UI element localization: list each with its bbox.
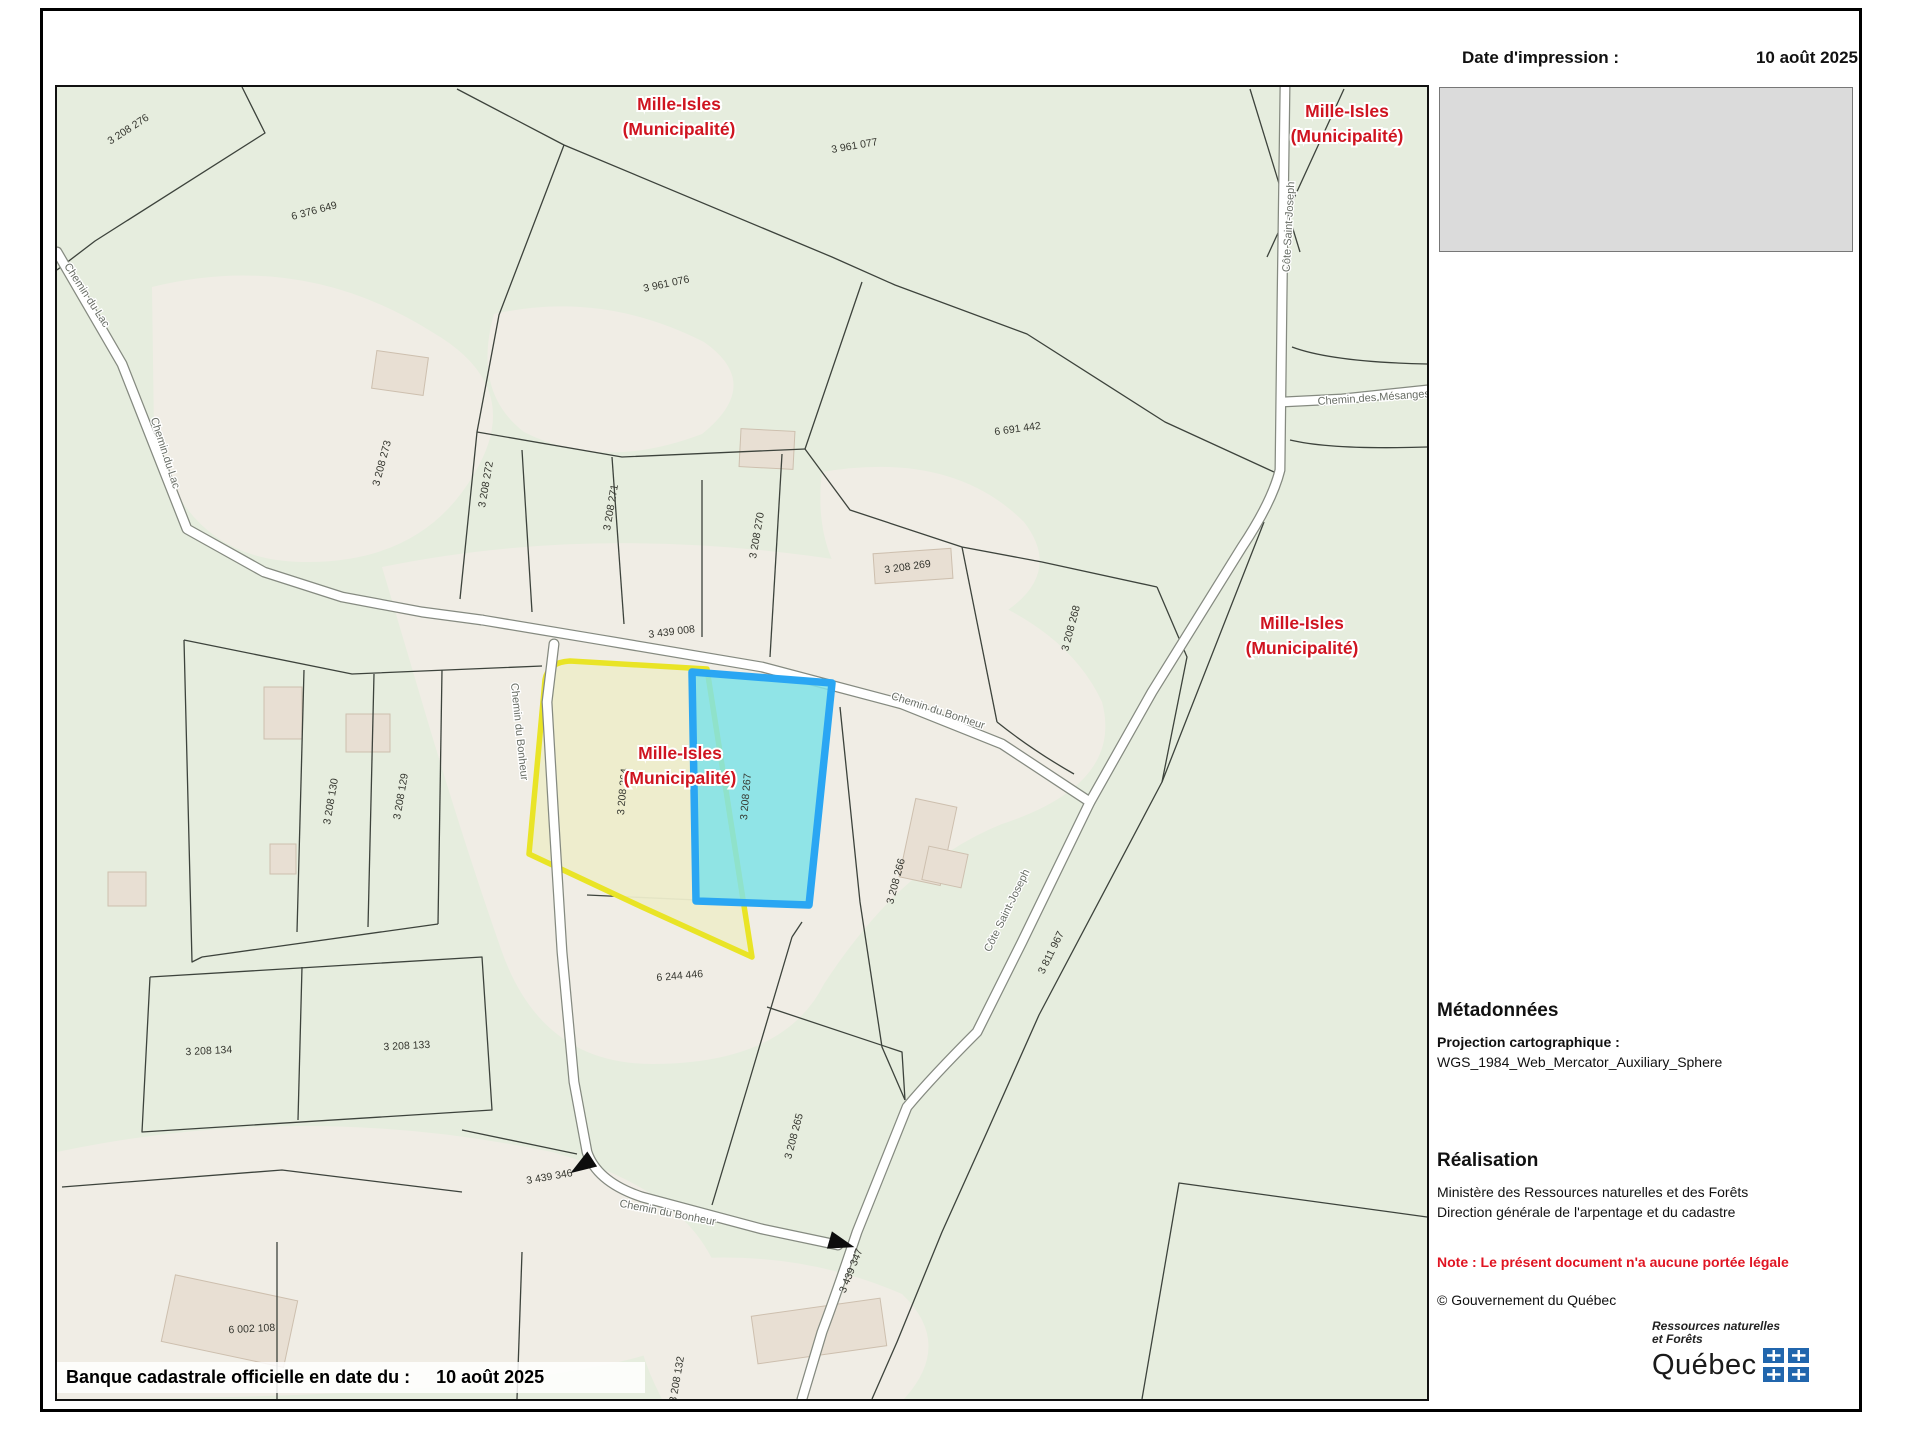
metadata-heading: Métadonnées [1437, 1000, 1857, 1022]
cadastral-map: 3 208 2766 376 6493 961 0773 961 0766 69… [57, 87, 1427, 1399]
municipality-label: (Municipalité) [1291, 126, 1404, 146]
map-frame: 3 208 2766 376 6493 961 0773 961 0766 69… [55, 85, 1429, 1401]
realisation-line1: Ministère des Ressources naturelles et d… [1437, 1184, 1857, 1200]
metadata-panel: Métadonnées Projection cartographique : … [1437, 1000, 1857, 1074]
realisation-heading: Réalisation [1437, 1150, 1857, 1172]
print-date-row: Date d'impression : 10 août 2025 [1462, 48, 1858, 68]
footer-cadastre-bar: Banque cadastrale officielle en date du … [57, 1362, 645, 1393]
realisation-panel: Réalisation Ministère des Ressources nat… [1437, 1150, 1857, 1308]
quebec-flag-icon [1763, 1348, 1809, 1382]
projection-value: WGS_1984_Web_Mercator_Auxiliary_Sphere [1437, 1054, 1857, 1070]
municipality-label: (Municipalité) [624, 768, 737, 788]
municipality-label: (Municipalité) [623, 119, 736, 139]
municipality-label: Mille-Isles [637, 94, 721, 114]
government-logo: Ressources naturelles et Forêts Québec [1652, 1320, 1858, 1382]
legal-note: Note : Le présent document n'a aucune po… [1437, 1254, 1857, 1270]
municipality-label: Mille-Isles [1260, 613, 1344, 633]
lot-label: 3 208 134 [185, 1044, 232, 1058]
footer-cadastre-date: 10 août 2025 [436, 1367, 544, 1388]
logo-wordmark: Québec [1652, 1349, 1757, 1382]
print-date-value: 10 août 2025 [1756, 48, 1858, 68]
municipality-label: (Municipalité) [1246, 638, 1359, 658]
cadastral-print-page: { "header": { "date_label": "Date d'impr… [0, 0, 1920, 1439]
footer-cadastre-label: Banque cadastrale officielle en date du … [66, 1367, 410, 1388]
print-date-label: Date d'impression : [1462, 48, 1619, 68]
lot-label: 3 208 133 [383, 1039, 430, 1053]
municipality-label: Mille-Isles [638, 743, 722, 763]
realisation-line2: Direction générale de l'arpentage et du … [1437, 1204, 1857, 1220]
municipality-label: Mille-Isles [1305, 101, 1389, 121]
projection-label: Projection cartographique : [1437, 1034, 1857, 1050]
legend-box [1439, 87, 1853, 252]
highlight-parcel-selected[interactable] [692, 672, 832, 905]
copyright-line: © Gouvernement du Québec [1437, 1292, 1857, 1308]
lot-label: 6 002 108 [228, 1322, 275, 1336]
logo-line2: et Forêts [1652, 1333, 1858, 1346]
